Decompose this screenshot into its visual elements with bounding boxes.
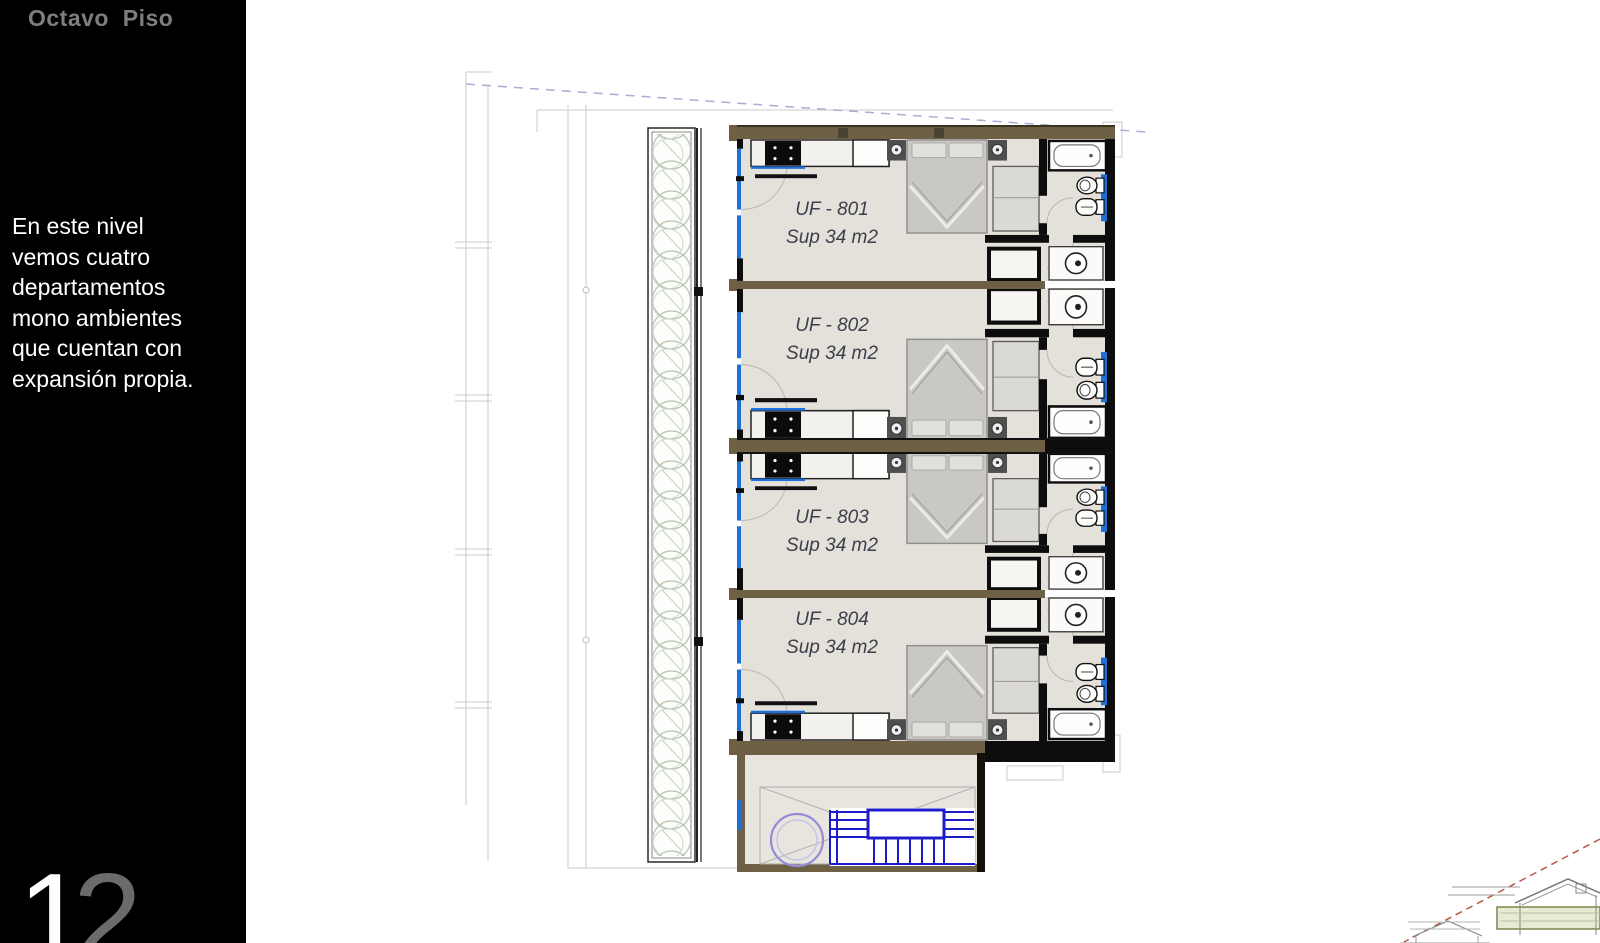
unit-label-803: UF - 803 Sup 34 m2: [757, 504, 907, 560]
unit-area: Sup 34 m2: [757, 532, 907, 560]
unit-id: UF - 804: [757, 606, 907, 634]
unit-id: UF - 803: [757, 504, 907, 532]
elevation-sketch: [1400, 839, 1600, 943]
unit-label-802: UF - 802 Sup 34 m2: [757, 312, 907, 368]
planter-strip: [648, 128, 703, 862]
page-number-digit: 1: [18, 849, 73, 943]
unit-id: UF - 802: [757, 312, 907, 340]
unit-area: Sup 34 m2: [757, 224, 907, 252]
slide-description: En este nivel vemos cuatro departamentos…: [12, 211, 230, 394]
unit-label-804: UF - 804 Sup 34 m2: [757, 606, 907, 662]
page-number-digit: 2: [73, 849, 128, 943]
stair-core: [737, 753, 985, 872]
page-number: 12: [18, 856, 128, 943]
unit-label-801: UF - 801 Sup 34 m2: [757, 196, 907, 252]
sidebar: Octavo Piso En este nivel vemos cuatro d…: [0, 0, 246, 943]
unit-area: Sup 34 m2: [757, 340, 907, 368]
page-title: Octavo Piso: [28, 5, 173, 32]
slide-canvas: UF - 801 Sup 34 m2 UF - 802 Sup 34 m2 UF…: [0, 0, 1600, 943]
unit-id: UF - 801: [757, 196, 907, 224]
unit-area: Sup 34 m2: [757, 634, 907, 662]
